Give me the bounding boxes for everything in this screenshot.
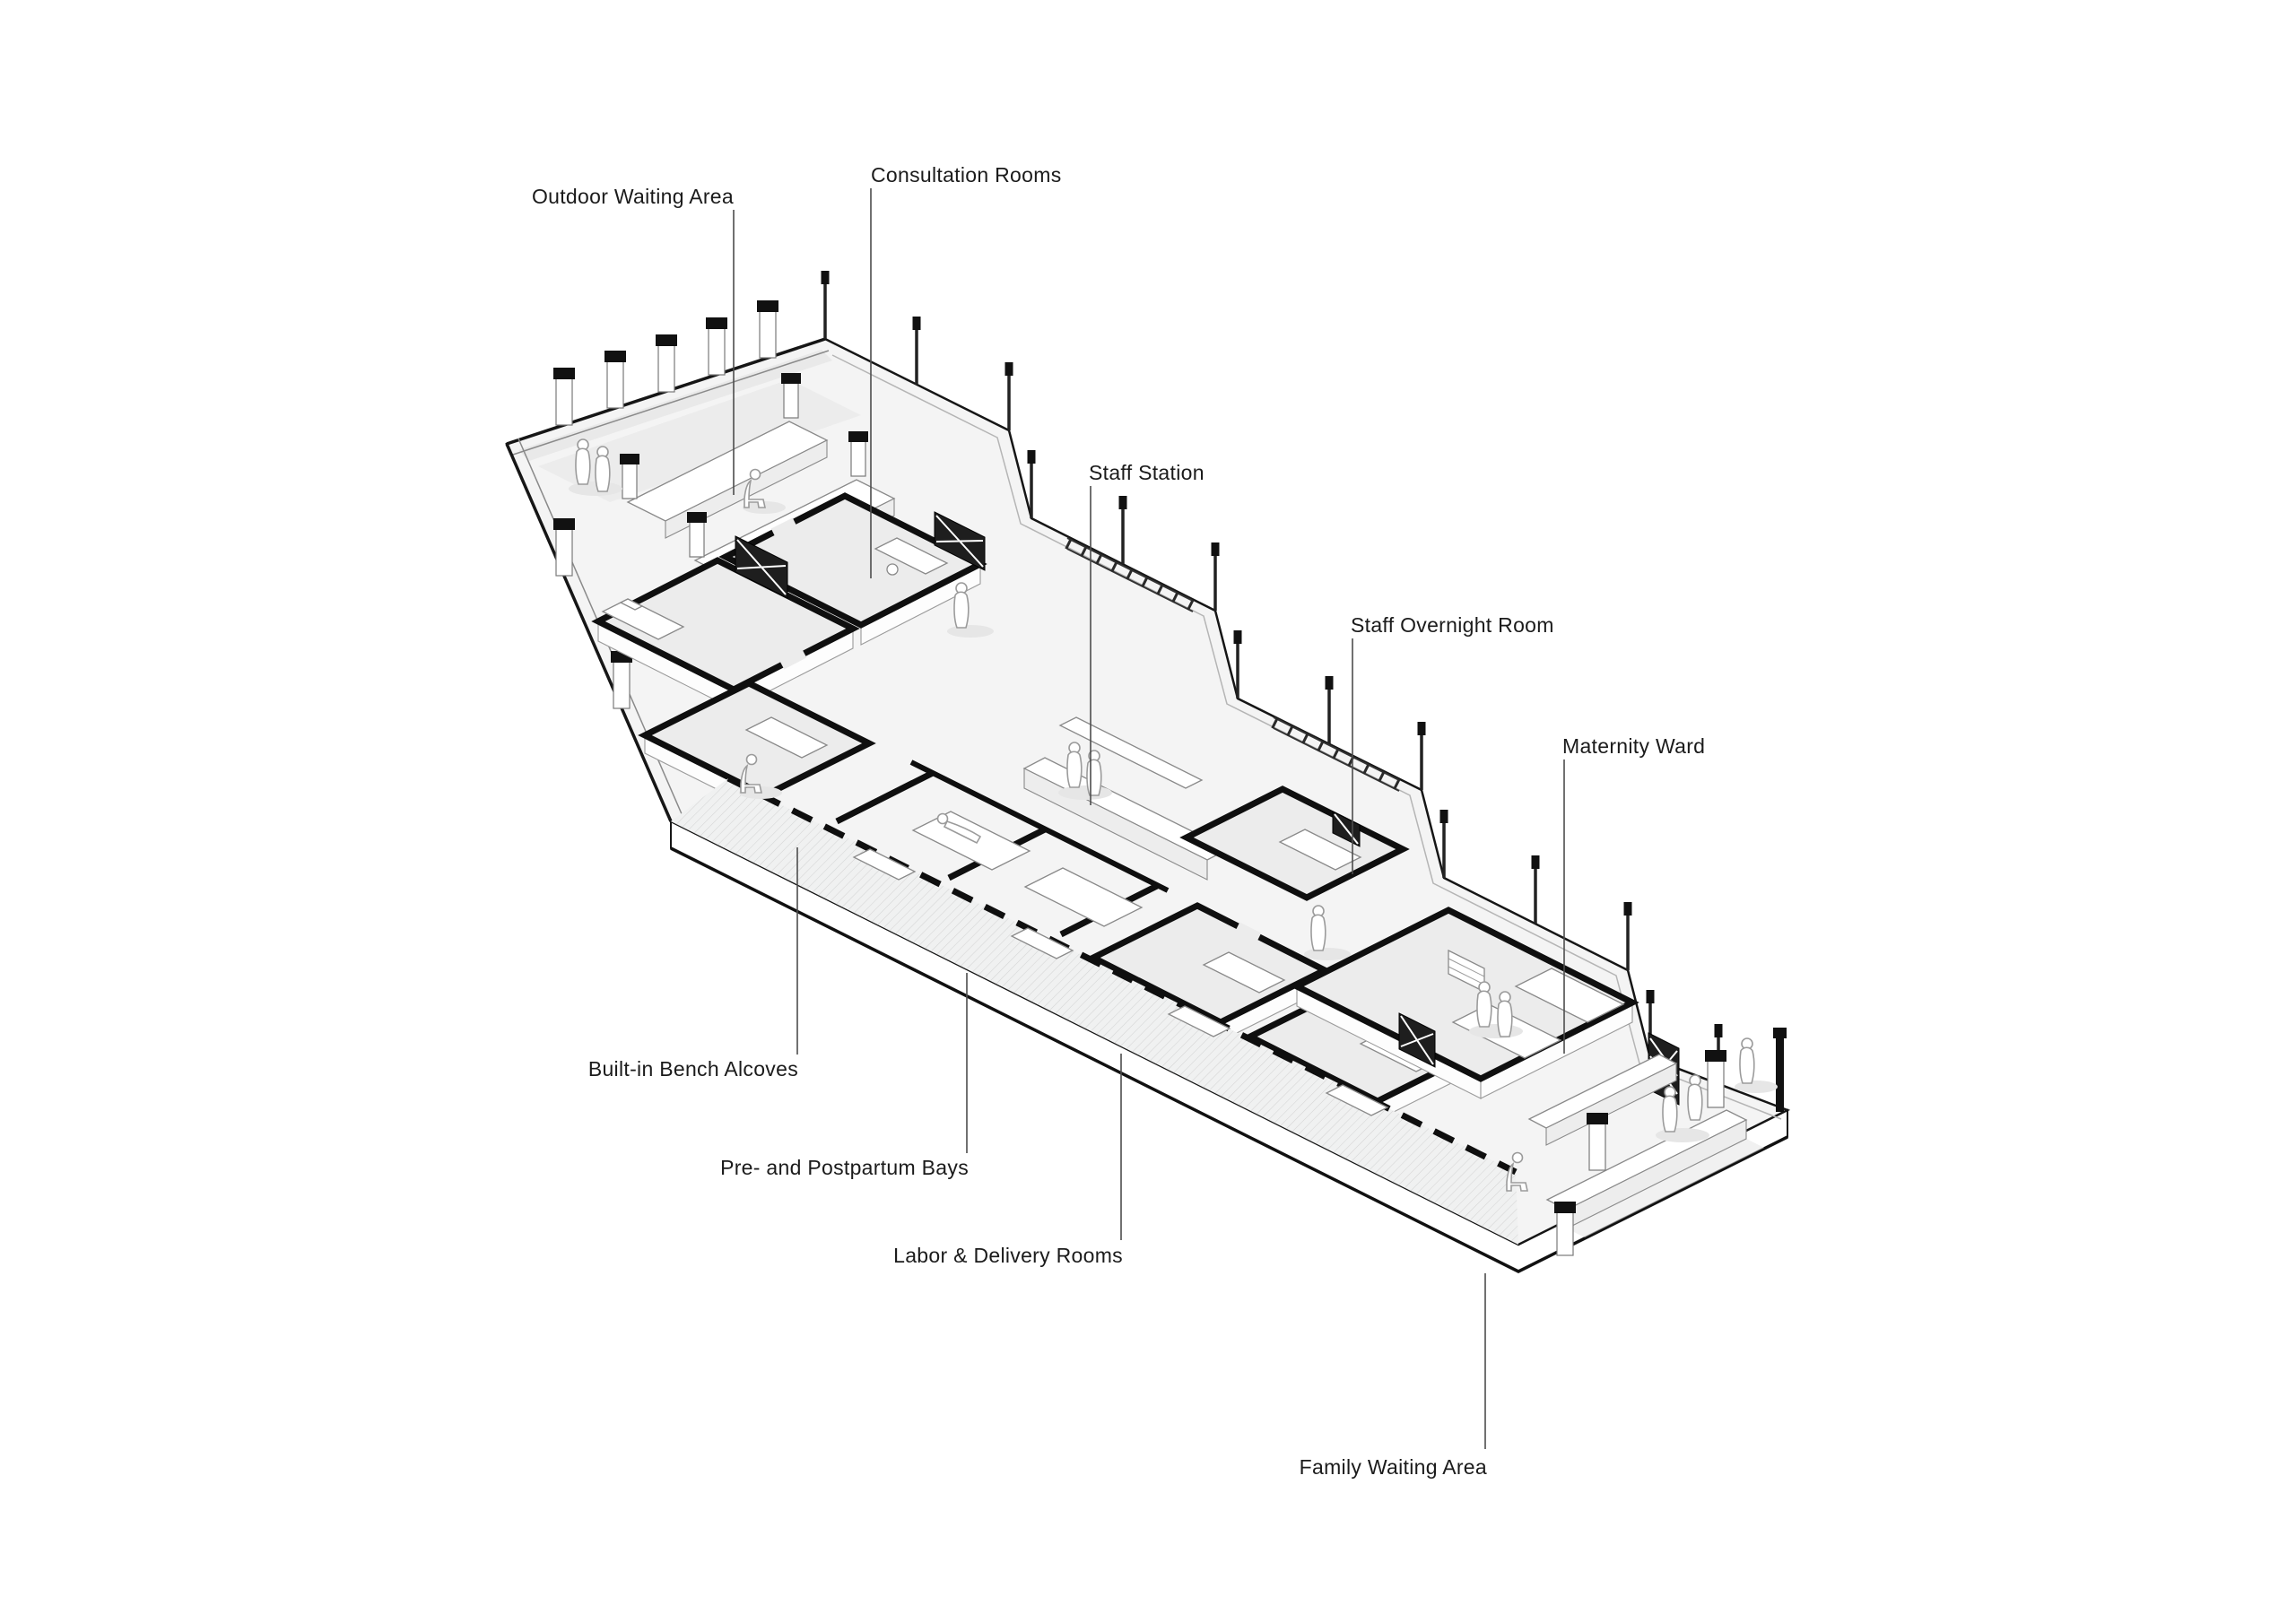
person (1688, 1075, 1702, 1120)
label-outdoor-waiting-area: Outdoor Waiting Area (532, 185, 734, 208)
fence-post (1624, 902, 1632, 970)
fence-post (822, 271, 830, 339)
brick-pier (553, 518, 575, 576)
brick-pier (553, 368, 575, 425)
person (1311, 906, 1326, 950)
fence-post (1532, 855, 1540, 924)
brick-pier (1705, 1050, 1726, 1107)
person (954, 583, 969, 628)
person (1740, 1038, 1754, 1083)
fence-post (913, 317, 921, 385)
fence-post (1418, 722, 1426, 790)
brick-pier (604, 351, 626, 408)
label-family-waiting-area: Family Waiting Area (1300, 1455, 1487, 1479)
person (1067, 742, 1082, 787)
fence-post (1119, 496, 1127, 564)
person (596, 447, 610, 491)
axonometric-floorplan-diagram: Outdoor Waiting Area Consultation Rooms … (0, 0, 2296, 1623)
label-staff-overnight-room: Staff Overnight Room (1351, 613, 1554, 637)
label-built-in-bench-alcoves: Built-in Bench Alcoves (588, 1057, 798, 1081)
brick-pier (656, 334, 677, 392)
fence-post (1005, 362, 1013, 430)
label-staff-station: Staff Station (1089, 461, 1205, 484)
person (1498, 992, 1512, 1037)
fence-post (1212, 542, 1220, 611)
person (1477, 982, 1492, 1027)
brick-pier (757, 300, 778, 358)
brick-pier (706, 317, 727, 375)
corner-post (1773, 1028, 1787, 1112)
diagram-canvas: Outdoor Waiting Area Consultation Rooms … (0, 0, 2296, 1623)
brick-pier (611, 651, 632, 708)
label-maternity-ward: Maternity Ward (1562, 734, 1705, 758)
person (1087, 751, 1101, 795)
label-consultation-rooms: Consultation Rooms (871, 163, 1062, 187)
brick-pier (1587, 1113, 1608, 1170)
person (1663, 1087, 1677, 1132)
label-pre-postpartum-bays: Pre- and Postpartum Bays (720, 1156, 969, 1179)
person (576, 439, 590, 484)
label-labor-delivery-rooms: Labor & Delivery Rooms (893, 1244, 1123, 1267)
brick-pier (1554, 1202, 1576, 1255)
fence-post (1326, 676, 1334, 744)
